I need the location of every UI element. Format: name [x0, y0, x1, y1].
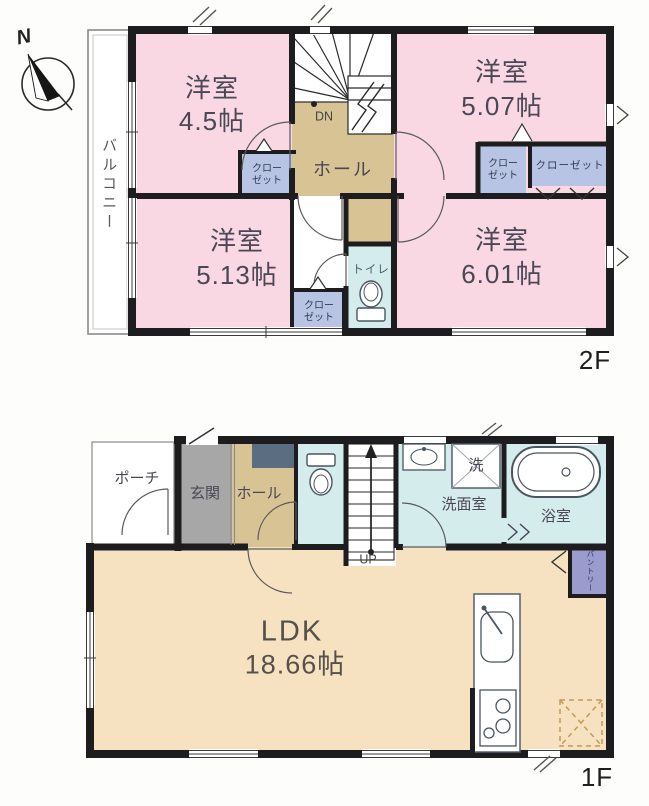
shoe-cabinet — [252, 442, 294, 468]
floor-1f-tag: 1F — [581, 763, 613, 791]
hall-2f-label: ホール — [313, 160, 373, 179]
stairs-down-label: DN — [315, 110, 333, 124]
room-2f-bl-size: 5.13帖 — [196, 261, 278, 289]
toilet-icon-1f — [307, 454, 335, 495]
room-2f-br-size: 6.01帖 — [461, 260, 543, 288]
porch-label: ポーチ — [114, 471, 159, 487]
ldk-size: 18.66帖 — [245, 650, 346, 679]
vent-marks-2f — [193, 5, 332, 25]
stairs-1f — [348, 444, 394, 560]
room-2f-bl-name: 洋室 — [210, 227, 264, 255]
toilet-icon-2f — [357, 281, 385, 321]
room-2f-br-name: 洋室 — [475, 226, 529, 254]
floor-plan-page: N バルコニー 洋室 4.5帖 洋室 5.07帖 洋室 5.13帖 洋室 6.0… — [0, 0, 649, 806]
sink-icon — [403, 444, 445, 470]
kitchen-counter — [470, 594, 520, 754]
porch-area — [92, 442, 174, 545]
stairs-up-label: UP — [359, 553, 376, 567]
ldk-name: LDK — [261, 616, 323, 647]
toilet-2f-label: トイレ — [352, 264, 390, 276]
bathtub-icon — [512, 447, 600, 497]
pantry-label: パントリー — [586, 550, 594, 593]
closet-2f-tl-label: クロー ゼット — [252, 164, 282, 187]
floor-1f — [84, 423, 614, 772]
hall-1f-label: ホール — [236, 486, 281, 502]
washroom-label: 洗面室 — [441, 497, 486, 513]
room-2f-tl-name: 洋室 — [185, 74, 239, 102]
bathroom-label: 浴室 — [541, 509, 571, 525]
room-2f-tl-size: 4.5帖 — [179, 107, 245, 135]
room-2f-tr-name: 洋室 — [475, 58, 529, 86]
closet-2f-mid-label: クロー ゼット — [488, 159, 518, 182]
balcony-label: バルコニー — [100, 138, 116, 233]
compass-icon — [22, 54, 74, 110]
closet-2f-wide-label: クローゼット — [536, 160, 605, 171]
entrance-label: 玄関 — [190, 486, 220, 502]
ldk-area — [90, 547, 610, 754]
laundry-label: 洗 — [468, 458, 483, 474]
closet-2f-bl-label: クロー ゼット — [304, 301, 334, 324]
floor-2f-tag: 2F — [579, 346, 611, 374]
room-2f-tr-size: 5.07帖 — [461, 92, 543, 120]
